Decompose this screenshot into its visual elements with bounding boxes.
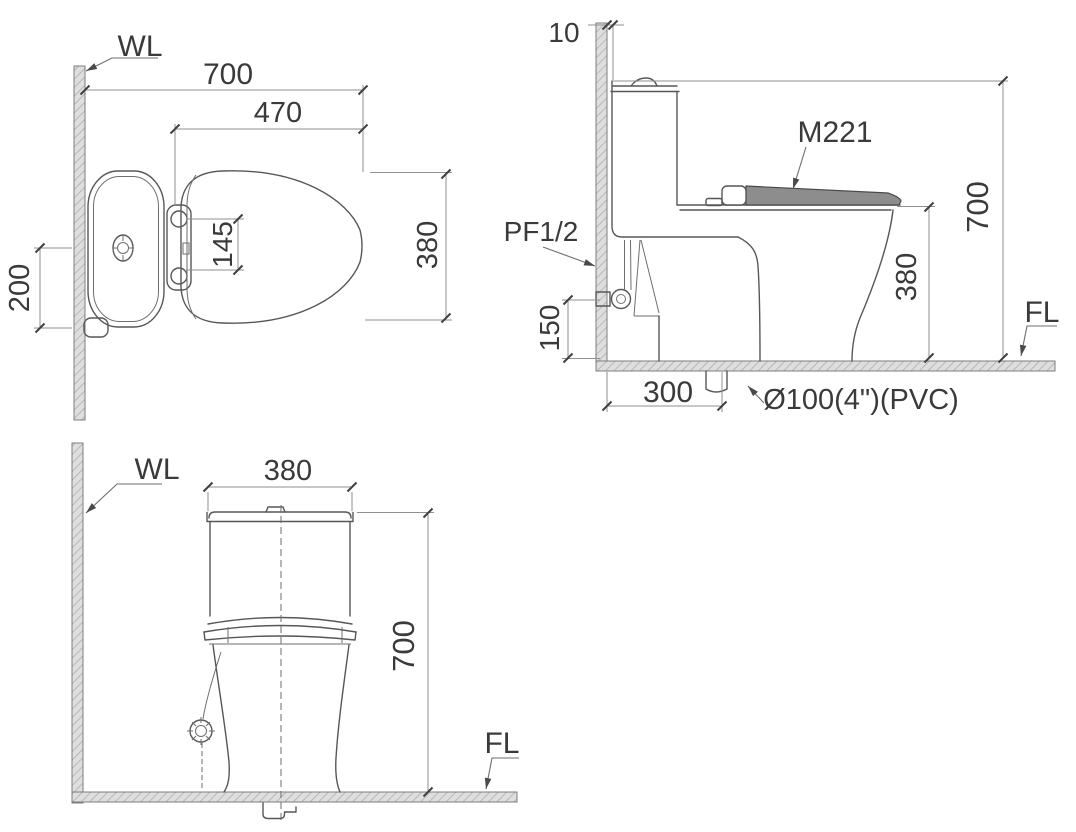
side-view: 10 M221 PF1/2 <box>504 17 1060 416</box>
flush-button <box>631 78 657 86</box>
dim-380-label: 380 <box>412 221 444 269</box>
dim-line <box>562 300 600 359</box>
wall-section-plan <box>74 66 85 420</box>
dim-drain-offset-300: 300 <box>603 372 727 412</box>
tank-lid-side <box>611 86 679 92</box>
seat-model-label: M221 <box>797 116 872 149</box>
dim-700-label: 700 <box>203 58 253 91</box>
toilet-front-outline <box>187 505 356 823</box>
dim-seat-width-380: 380 <box>365 170 452 323</box>
supply-leader <box>543 247 595 266</box>
supply-valve <box>612 290 631 309</box>
dim-supply-offset-200: 200 <box>4 244 72 333</box>
dim-wall-gap-10: 10 <box>548 17 624 80</box>
dim-seat-length-470: 470 <box>171 97 368 206</box>
dim-300-label: 300 <box>643 376 693 409</box>
seat-band-top <box>204 626 356 633</box>
tank-back-outline <box>612 81 738 237</box>
pedestal-left-contour <box>213 645 229 792</box>
floor-section-side <box>596 361 1055 371</box>
tank-lid-top <box>209 512 351 518</box>
seat-hinge-cover <box>722 186 746 205</box>
dim-470-label: 470 <box>254 97 302 129</box>
supply-label: PF1/2 <box>504 216 579 247</box>
dim-tank-width-380: 380 <box>204 455 357 511</box>
tank-outline-plan <box>88 171 164 327</box>
toilet-dimension-drawing: WL 700 470 380 <box>0 0 1076 832</box>
wall-section-side <box>596 23 607 361</box>
supply-knob-inner <box>196 726 207 737</box>
dim-rim-height-380: 380 <box>891 203 935 363</box>
floor-line-label-front: FL <box>484 727 519 760</box>
drain-label: Ø100(4")(PVC) <box>763 384 959 416</box>
wall-line-label: WL <box>118 30 163 63</box>
supply-hole-inner <box>118 243 129 254</box>
dim-supply-height-150: 150 <box>534 296 600 363</box>
drain-leader <box>748 386 764 403</box>
hinge-bolt-bottom <box>171 268 187 284</box>
dim-700-label: 700 <box>960 181 995 233</box>
trap-bracket <box>634 240 659 316</box>
wall-line-label-front: WL <box>135 453 180 486</box>
supply-knob-ticks <box>187 717 215 745</box>
seat-model-leader <box>793 147 806 189</box>
floor-line-label-side: FL <box>1024 296 1059 329</box>
drain-pipe-stub <box>706 371 727 392</box>
lid-center-bump <box>266 507 285 512</box>
tank-lid-band <box>207 513 353 522</box>
bowl-pedestal-back <box>738 237 760 361</box>
supply-riser-pipe <box>625 240 632 290</box>
dim-380-label: 380 <box>891 253 923 301</box>
floor-line-leader-side <box>1021 326 1057 356</box>
hinge-bolt-top <box>171 211 187 227</box>
tank-inner-outline-plan <box>94 177 159 322</box>
top-view: WL 700 470 380 <box>4 30 452 420</box>
bowl-front-curve <box>852 210 893 361</box>
dim-overall-depth-700: 700 <box>81 58 368 172</box>
dim-hinge-spacing-145: 145 <box>186 215 244 275</box>
dim-700-label: 700 <box>386 620 421 672</box>
dim-line <box>34 248 72 328</box>
pedestal-right-contour <box>336 645 349 792</box>
dim-overall-height-700-front: 700 <box>357 509 434 797</box>
dim-380-label: 380 <box>264 455 312 487</box>
technical-drawing-page: WL 700 470 380 <box>0 0 1076 832</box>
seat-lid-side <box>746 186 901 205</box>
wall-section-front <box>72 443 83 803</box>
dim-200-label: 200 <box>4 264 36 312</box>
wall-line-leader-front <box>86 484 162 513</box>
front-view: WL 380 <box>72 443 520 823</box>
supply-elbow-plan <box>84 318 108 337</box>
dim-10-label: 10 <box>548 17 579 48</box>
tank-sides <box>210 522 350 617</box>
dim-150-label: 150 <box>534 305 565 352</box>
drain-below-floor <box>263 803 296 819</box>
dim-line <box>175 124 363 206</box>
seat-top-curve <box>208 618 352 625</box>
seat-band-bottom <box>204 632 356 640</box>
seat-hinge-ticks <box>228 627 342 643</box>
floor-line-leader-front <box>486 758 519 789</box>
supply-valve-inner <box>617 295 626 304</box>
floor-section-front <box>72 792 517 802</box>
dim-145-label: 145 <box>207 221 238 268</box>
